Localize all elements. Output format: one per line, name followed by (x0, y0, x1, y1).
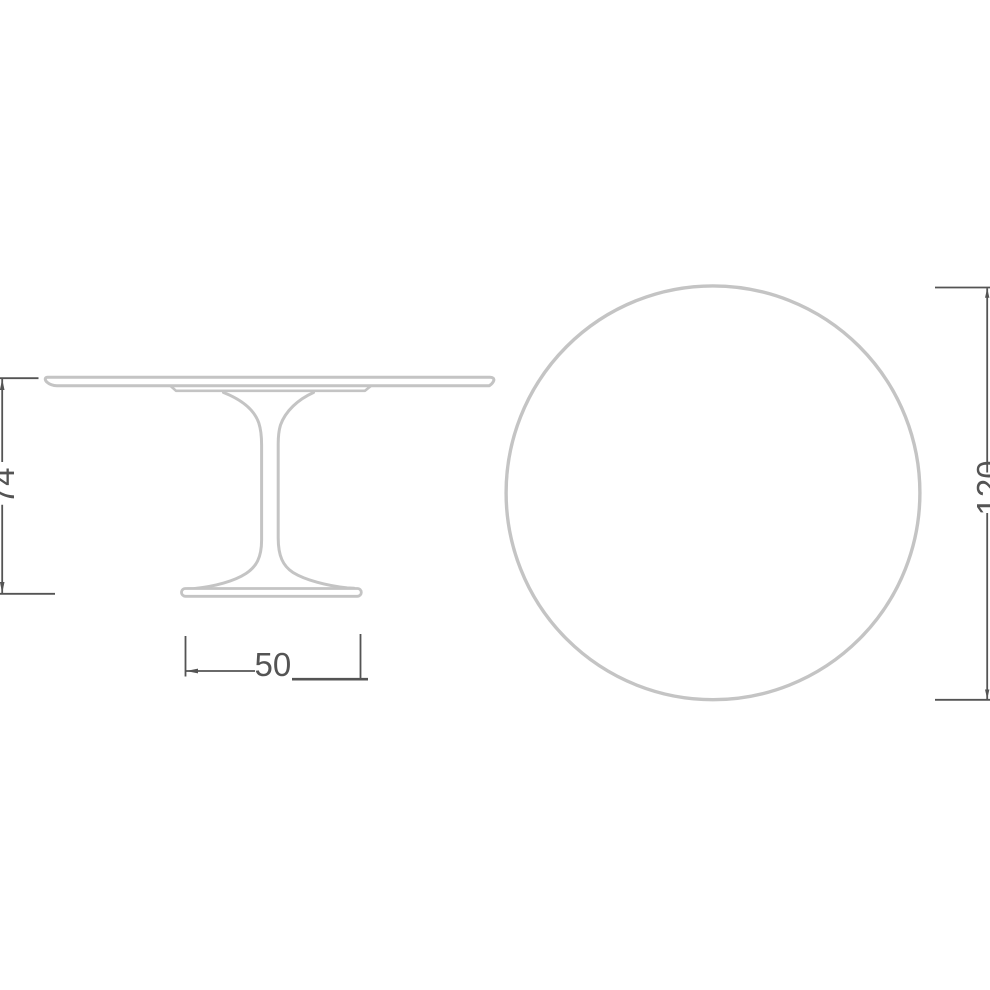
svg-text:50: 50 (255, 646, 292, 683)
svg-text:74: 74 (0, 467, 21, 504)
svg-text:120: 120 (970, 460, 990, 515)
